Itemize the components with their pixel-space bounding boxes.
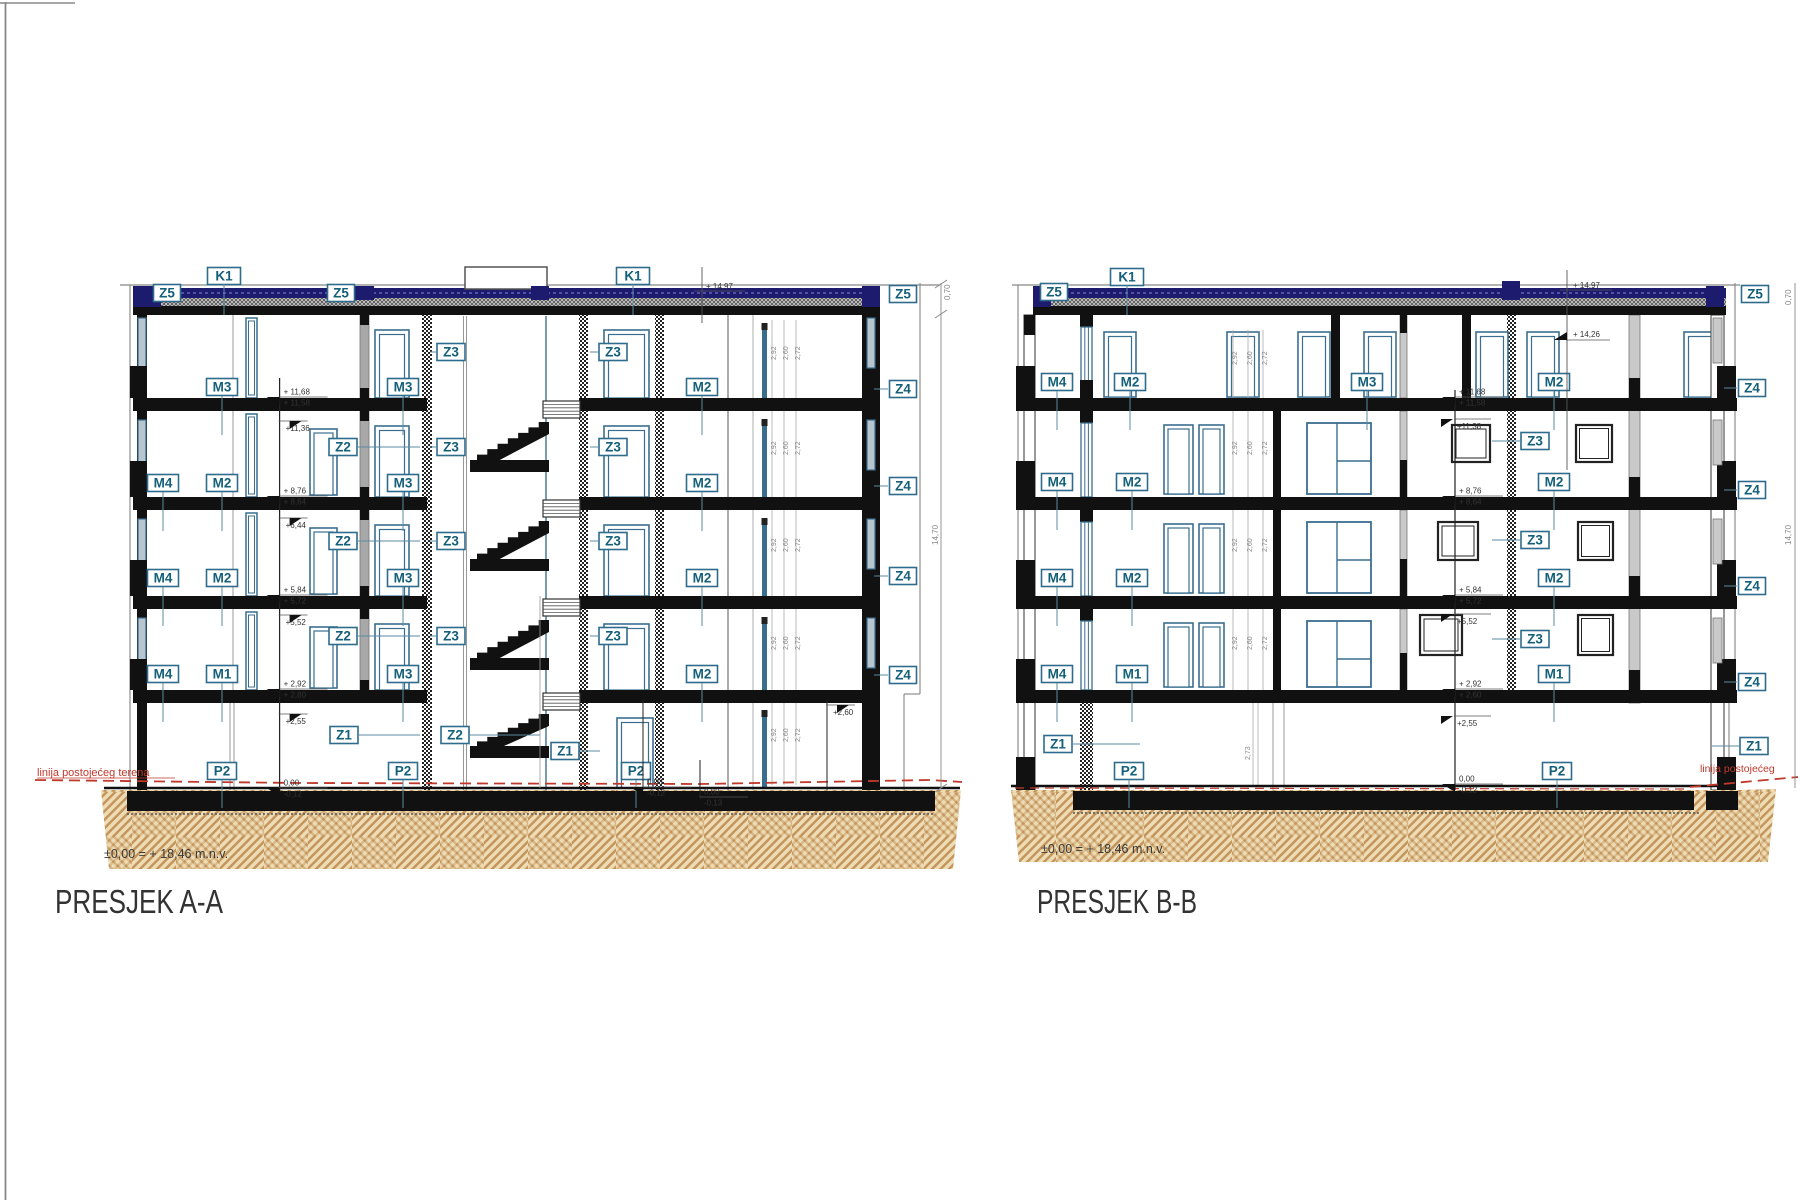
svg-text:Z5: Z5 — [895, 287, 911, 302]
svg-text:+ 8,76: + 8,76 — [1459, 487, 1482, 496]
svg-text:K1: K1 — [1118, 270, 1136, 285]
svg-text:M3: M3 — [394, 667, 413, 682]
svg-text:linija postojećeg: linija postojećeg — [1700, 763, 1775, 775]
svg-text:M3: M3 — [1358, 375, 1377, 390]
svg-text:+ 11,58: + 11,58 — [284, 399, 311, 408]
svg-text:Z1: Z1 — [557, 744, 573, 759]
svg-text:+ 5,72: + 5,72 — [284, 597, 307, 606]
svg-text:M1: M1 — [213, 667, 232, 682]
svg-text:M4: M4 — [1048, 571, 1067, 586]
svg-text:M2: M2 — [1545, 375, 1564, 390]
svg-text:2,72: 2,72 — [795, 538, 802, 552]
svg-text:+5,52: +5,52 — [286, 618, 307, 627]
svg-text:M2: M2 — [693, 667, 712, 682]
svg-text:Z3: Z3 — [605, 629, 621, 644]
svg-text:M3: M3 — [213, 380, 232, 395]
svg-text:M4: M4 — [1048, 667, 1067, 682]
svg-text:2,72: 2,72 — [1262, 441, 1269, 455]
svg-text:M4: M4 — [154, 571, 173, 586]
svg-text:2,92: 2,92 — [771, 441, 778, 455]
svg-text:+ 5,84: + 5,84 — [1459, 586, 1482, 595]
svg-text:0,70: 0,70 — [1784, 289, 1793, 305]
svg-text:14,70: 14,70 — [931, 524, 940, 545]
svg-text:2,92: 2,92 — [1232, 538, 1239, 552]
svg-text:Z5: Z5 — [1747, 287, 1763, 302]
svg-text:2,72: 2,72 — [795, 728, 802, 742]
svg-text:2,60: 2,60 — [783, 636, 790, 650]
svg-text:±0,00 = + 18,46 m.n.v.: ±0,00 = + 18,46 m.n.v. — [104, 847, 228, 861]
svg-text:2,60: 2,60 — [1247, 538, 1254, 552]
svg-text:±0,00 = + 18,46 m.n.v.: ±0,00 = + 18,46 m.n.v. — [1041, 842, 1165, 856]
svg-text:M2: M2 — [693, 380, 712, 395]
svg-text:M1: M1 — [1545, 667, 1564, 682]
svg-text:M2: M2 — [213, 476, 232, 491]
svg-text:Z2: Z2 — [335, 440, 351, 455]
svg-text:2,92: 2,92 — [1232, 351, 1239, 365]
svg-text:M1: M1 — [1123, 667, 1142, 682]
svg-text:Z5: Z5 — [333, 286, 349, 301]
svg-text:Z3: Z3 — [1527, 434, 1543, 449]
svg-text:Z3: Z3 — [443, 440, 459, 455]
svg-text:+ 14,97: + 14,97 — [1573, 281, 1600, 290]
svg-text:+2,60: +2,60 — [833, 708, 854, 717]
svg-text:M3: M3 — [394, 571, 413, 586]
svg-text:PRESJEK B-B: PRESJEK B-B — [1037, 883, 1197, 920]
svg-text:+ 2,92: + 2,92 — [1459, 680, 1482, 689]
svg-text:0,00: 0,00 — [704, 788, 720, 797]
svg-text:M3: M3 — [394, 380, 413, 395]
svg-text:M4: M4 — [1048, 475, 1067, 490]
svg-text:-0,12: -0,12 — [647, 789, 666, 798]
svg-text:+2,55: +2,55 — [286, 717, 307, 726]
svg-text:Z2: Z2 — [335, 629, 351, 644]
svg-text:+ 8,64: + 8,64 — [284, 498, 307, 507]
svg-text:+11,38: +11,38 — [1457, 422, 1482, 431]
svg-text:M2: M2 — [1123, 475, 1142, 490]
svg-text:2,72: 2,72 — [1262, 351, 1269, 365]
svg-text:2,92: 2,92 — [771, 636, 778, 650]
svg-text:Z4: Z4 — [1744, 579, 1760, 594]
svg-text:2,60: 2,60 — [783, 346, 790, 360]
svg-text:-0,13: -0,13 — [704, 799, 723, 808]
svg-text:2,60: 2,60 — [1247, 636, 1254, 650]
svg-text:Z3: Z3 — [443, 534, 459, 549]
svg-text:2,60: 2,60 — [783, 728, 790, 742]
svg-text:2,92: 2,92 — [1232, 441, 1239, 455]
svg-text:P2: P2 — [628, 764, 645, 779]
svg-text:+ 11,58: + 11,58 — [1459, 399, 1486, 408]
svg-text:2,72: 2,72 — [1262, 636, 1269, 650]
svg-text:0,00: 0,00 — [647, 778, 663, 787]
svg-text:2,92: 2,92 — [771, 346, 778, 360]
svg-text:Z5: Z5 — [159, 286, 175, 301]
svg-text:Z3: Z3 — [443, 629, 459, 644]
svg-text:M2: M2 — [1123, 571, 1142, 586]
svg-text:+ 5,72: + 5,72 — [1459, 597, 1482, 606]
svg-text:+6,44: +6,44 — [286, 521, 307, 530]
svg-text:Z3: Z3 — [605, 440, 621, 455]
svg-text:Z1: Z1 — [1050, 737, 1066, 752]
svg-text:M2: M2 — [1121, 375, 1140, 390]
svg-text:+ 11,68: + 11,68 — [1459, 388, 1486, 397]
svg-text:M4: M4 — [1048, 375, 1067, 390]
svg-text:PRESJEK A-A: PRESJEK A-A — [55, 883, 223, 920]
svg-text:Z3: Z3 — [443, 345, 459, 360]
svg-text:+ 14,26: + 14,26 — [1573, 330, 1600, 339]
svg-text:2,60: 2,60 — [1247, 351, 1254, 365]
svg-text:P2: P2 — [395, 764, 412, 779]
svg-text:Z4: Z4 — [895, 569, 911, 584]
svg-text:+ 2,60: + 2,60 — [1459, 691, 1482, 700]
svg-text:+ 5,84: + 5,84 — [284, 586, 307, 595]
svg-text:+2,55: +2,55 — [1457, 719, 1478, 728]
svg-text:+ 14,97: + 14,97 — [706, 282, 733, 291]
svg-text:2,72: 2,72 — [795, 346, 802, 360]
svg-text:-0,12: -0,12 — [284, 790, 303, 799]
svg-text:Z3: Z3 — [605, 534, 621, 549]
svg-text:+ 2,80: + 2,80 — [284, 691, 307, 700]
svg-text:2,92: 2,92 — [771, 728, 778, 742]
svg-text:0,70: 0,70 — [943, 284, 952, 300]
svg-text:Z2: Z2 — [335, 534, 351, 549]
svg-text:Z4: Z4 — [895, 668, 911, 683]
svg-text:M2: M2 — [693, 476, 712, 491]
svg-text:linija postojećeg terena: linija postojećeg terena — [37, 767, 150, 779]
svg-text:2,72: 2,72 — [1262, 538, 1269, 552]
svg-text:K1: K1 — [624, 269, 642, 284]
svg-text:+5,52: +5,52 — [1457, 617, 1478, 626]
svg-text:0,00: 0,00 — [284, 779, 300, 788]
svg-text:2,60: 2,60 — [783, 441, 790, 455]
svg-text:2,92: 2,92 — [771, 538, 778, 552]
svg-text:M2: M2 — [693, 571, 712, 586]
svg-text:M2: M2 — [1545, 475, 1564, 490]
svg-text:Z5: Z5 — [1046, 285, 1062, 300]
svg-text:M4: M4 — [154, 476, 173, 491]
svg-text:+ 11,68: + 11,68 — [284, 388, 311, 397]
svg-text:Z3: Z3 — [605, 345, 621, 360]
svg-text:+ 2,92: + 2,92 — [284, 680, 307, 689]
svg-text:2,72: 2,72 — [795, 636, 802, 650]
svg-text:M4: M4 — [154, 667, 173, 682]
svg-text:Z4: Z4 — [1744, 675, 1760, 690]
svg-text:Z4: Z4 — [1744, 381, 1760, 396]
svg-text:2,92: 2,92 — [1232, 636, 1239, 650]
svg-text:+ 8,64: + 8,64 — [1459, 498, 1482, 507]
svg-text:M2: M2 — [213, 571, 232, 586]
svg-text:Z2: Z2 — [447, 728, 463, 743]
svg-text:2,60: 2,60 — [1247, 441, 1254, 455]
svg-text:K1: K1 — [215, 269, 233, 284]
svg-text:P2: P2 — [214, 764, 231, 779]
svg-text:Z1: Z1 — [1746, 739, 1762, 754]
svg-text:P2: P2 — [1121, 764, 1138, 779]
svg-text:2,73: 2,73 — [1245, 746, 1252, 760]
svg-text:Z1: Z1 — [336, 728, 352, 743]
svg-text:0,00: 0,00 — [1459, 775, 1475, 784]
svg-text:+ 8,76: + 8,76 — [284, 487, 307, 496]
svg-text:2,72: 2,72 — [795, 441, 802, 455]
svg-text:Z4: Z4 — [895, 479, 911, 494]
svg-text:M3: M3 — [394, 476, 413, 491]
svg-text:-0,12: -0,12 — [1459, 786, 1478, 795]
svg-text:Z3: Z3 — [1527, 632, 1543, 647]
svg-text:P2: P2 — [1549, 764, 1566, 779]
svg-text:M2: M2 — [1545, 571, 1564, 586]
svg-text:2,60: 2,60 — [783, 538, 790, 552]
svg-text:14,70: 14,70 — [1784, 524, 1793, 545]
svg-text:+11,36: +11,36 — [286, 424, 311, 433]
svg-text:Z3: Z3 — [1527, 533, 1543, 548]
svg-text:Z4: Z4 — [1744, 483, 1760, 498]
svg-text:Z4: Z4 — [895, 382, 911, 397]
